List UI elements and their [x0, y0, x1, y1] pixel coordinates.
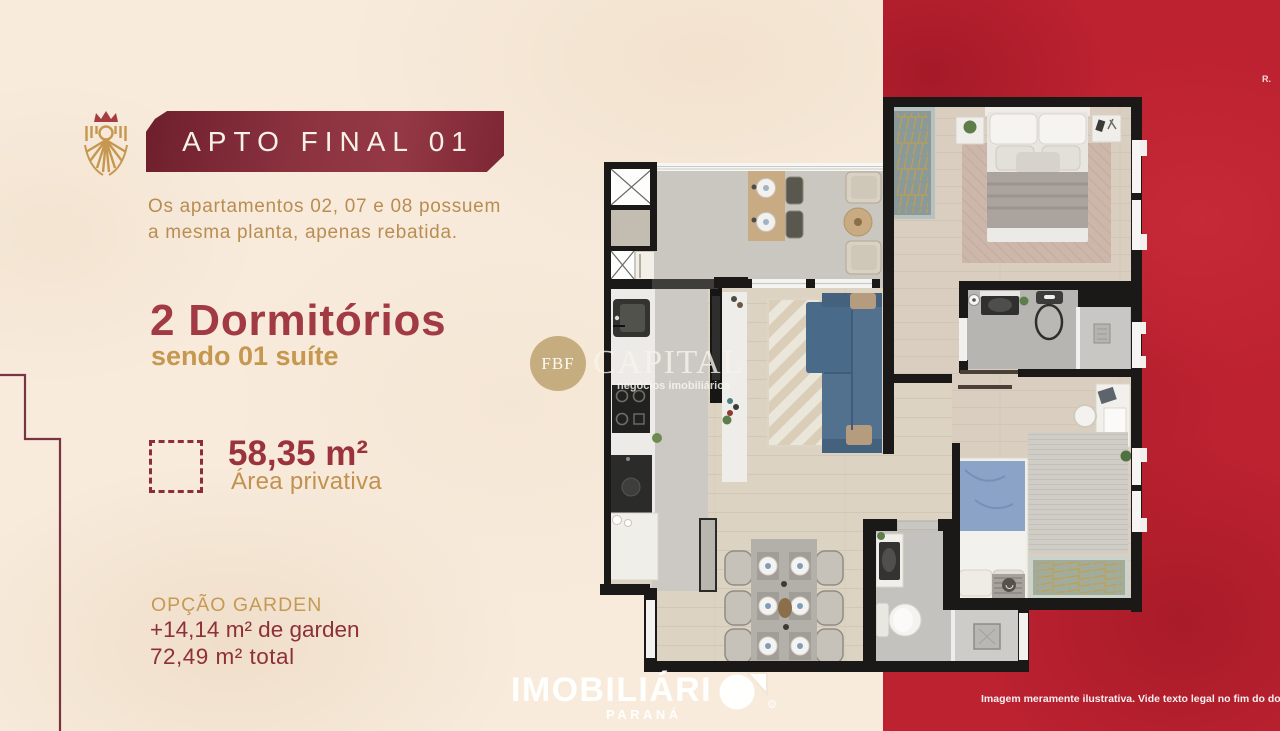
svg-text:R: R: [770, 703, 774, 709]
